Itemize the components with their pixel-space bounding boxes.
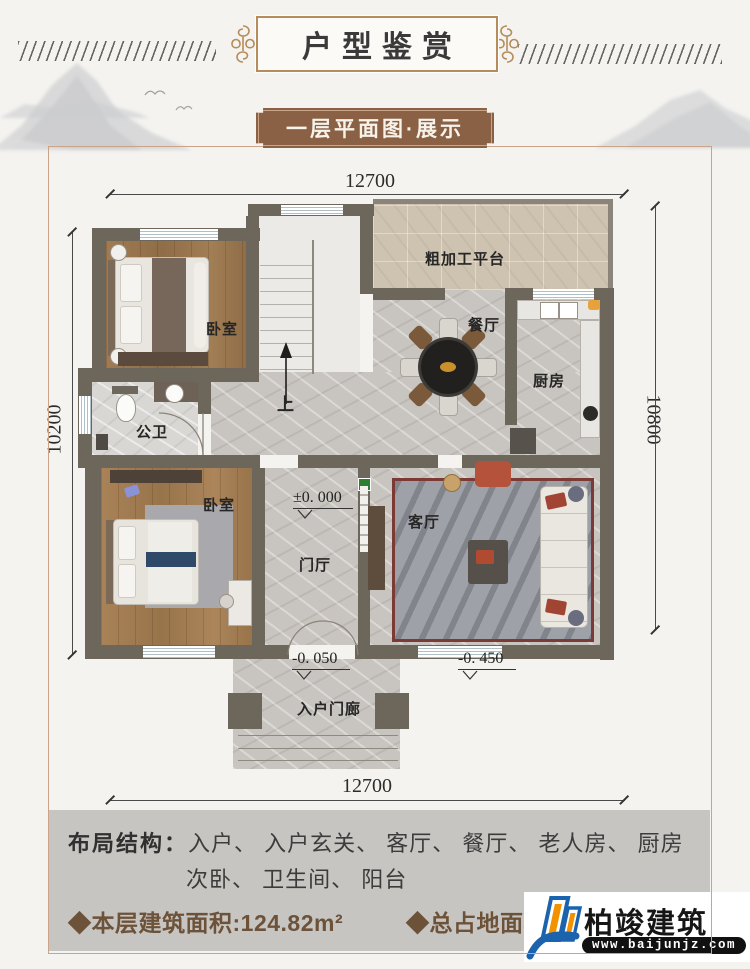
window (143, 646, 215, 658)
plant-pot (568, 610, 584, 626)
room-label-living: 客厅 (408, 511, 440, 532)
poster-page: 户型鉴赏 一层平面图·展示 12700 12700 10200 10800 (0, 0, 750, 969)
dim-top: 12700 (345, 170, 395, 193)
wall (360, 204, 373, 294)
wardrobe (118, 352, 208, 366)
mountain-right-art (595, 88, 750, 148)
bed-blanket-blue (146, 552, 196, 567)
dining-chair (400, 358, 423, 377)
wall (505, 288, 533, 300)
room-label-porch: 入户门廊 (297, 698, 361, 719)
diamond-bullet-icon: ◆ (68, 910, 92, 936)
stat-floor-area-text: 本层建筑面积:124.82m² (92, 910, 344, 936)
dim-left: 10200 (44, 405, 67, 455)
subtitle-text: 一层平面图·展示 (286, 113, 464, 143)
elevation-triangle-icon (297, 509, 313, 519)
window (140, 229, 218, 240)
dim-right-line (655, 206, 656, 630)
subtitle-banner: 一层平面图·展示 (256, 108, 494, 148)
wall (505, 300, 517, 425)
elevation-triangle-icon (296, 670, 312, 680)
bed-blanket (152, 258, 186, 352)
diamond-bullet-icon: ◆ (406, 910, 430, 936)
wall (252, 468, 265, 658)
room-label-bedroom-top: 卧室 (206, 318, 238, 339)
room-label-stairs-up: 上 (277, 390, 295, 415)
porch-step-line (238, 748, 398, 749)
elevation-marker-0: ±0. 000 (293, 489, 353, 519)
stair-rail (312, 240, 314, 374)
layout-structure-line2: 次卧、 卫生间、 阳台 (186, 862, 407, 894)
wall (92, 228, 106, 378)
logo-name: 柏竣建筑 (584, 900, 708, 942)
room-label-foyer: 门厅 (299, 554, 331, 575)
dim-bottom-line (110, 800, 625, 801)
wall (85, 455, 260, 468)
baijun-logo-icon (524, 894, 584, 960)
bird-icon (144, 87, 166, 97)
page-title: 户型鉴赏 (302, 22, 462, 66)
wall (265, 645, 289, 659)
window (533, 289, 594, 299)
pillow (118, 564, 136, 598)
layout-structure-line1: 入户、 入户玄关、 客厅、 餐厅、 老人房、 厨房 (188, 831, 684, 856)
layout-structure-row: 布局结构：入户、 入户玄关、 客厅、 餐厅、 老人房、 厨房 (68, 826, 684, 858)
table-centerpiece (440, 362, 456, 372)
elevation-marker-1: -0. 050 (292, 650, 350, 680)
sink (165, 384, 184, 403)
platform-parapet (373, 199, 613, 204)
elevation-triangle-icon (462, 670, 478, 680)
wall (373, 288, 445, 300)
dining-chair (474, 358, 497, 377)
platform-parapet (608, 199, 613, 294)
bird-icon (175, 103, 193, 112)
window (79, 396, 91, 434)
logo-url: www.baijunjz.com (582, 937, 746, 954)
window (281, 205, 343, 215)
table-decor (476, 550, 494, 564)
dim-left-line (72, 232, 73, 655)
porch-step-line (238, 735, 398, 736)
logo-box: 柏竣建筑 www.baijunjz.com (524, 892, 750, 962)
wall (246, 216, 259, 376)
kitchen-sink (540, 302, 559, 319)
elevation-value: -0. 050 (292, 650, 337, 667)
armchair (475, 461, 511, 487)
tv-cabinet (368, 506, 385, 590)
pillow (120, 264, 142, 302)
page-title-frame: 户型鉴赏 (256, 16, 498, 72)
layout-structure-label: 布局结构： (68, 831, 188, 856)
pillow (118, 526, 136, 560)
cloud-scroll-left-icon (228, 24, 258, 64)
wall (85, 455, 101, 658)
room-label-kitchen: 厨房 (533, 370, 565, 391)
elevation-value: ±0. 000 (293, 489, 342, 506)
porch-step-line (238, 760, 398, 761)
stat-floor-area: ◆本层建筑面积:124.82m² (68, 904, 343, 938)
room-label-bathroom: 公卫 (136, 421, 168, 442)
floor-lamp (568, 486, 584, 502)
wall (198, 368, 211, 414)
dim-bottom: 12700 (342, 775, 392, 798)
foyer-cabinet (360, 486, 368, 552)
toilet (116, 394, 136, 422)
bed-runner (194, 262, 206, 348)
tv-cabinet (110, 470, 202, 483)
stove (583, 406, 598, 421)
elevation-marker-2: -0. 450 (458, 650, 516, 680)
dim-right: 10800 (642, 395, 665, 445)
dining-chair (439, 393, 458, 416)
dim-top-line (110, 194, 625, 195)
side-table (443, 474, 461, 492)
dining-chair (439, 318, 458, 341)
fridge (510, 428, 536, 454)
room-label-bedroom-bottom: 卧室 (203, 494, 235, 515)
bed-headboard (106, 520, 114, 604)
wall (92, 368, 259, 382)
porch-pillar (228, 693, 262, 729)
bed-headboard (108, 260, 116, 356)
floor-platform (373, 204, 608, 290)
room-label-platform: 粗加工平台 (425, 248, 505, 269)
hatch-right-decor (518, 44, 722, 64)
wall (600, 288, 614, 660)
wall (298, 455, 438, 468)
kitchen-sink (559, 302, 578, 319)
elevation-value: -0. 450 (458, 650, 503, 667)
nightstand (110, 244, 127, 261)
pillow (120, 306, 142, 344)
bath-fixture (96, 434, 108, 450)
room-label-dining: 餐厅 (468, 314, 500, 335)
hill-left-art (0, 100, 150, 118)
porch-pillar (375, 693, 409, 729)
toilet-tank (112, 386, 138, 394)
desk-chair (219, 594, 234, 609)
kitchen-item (588, 300, 600, 310)
